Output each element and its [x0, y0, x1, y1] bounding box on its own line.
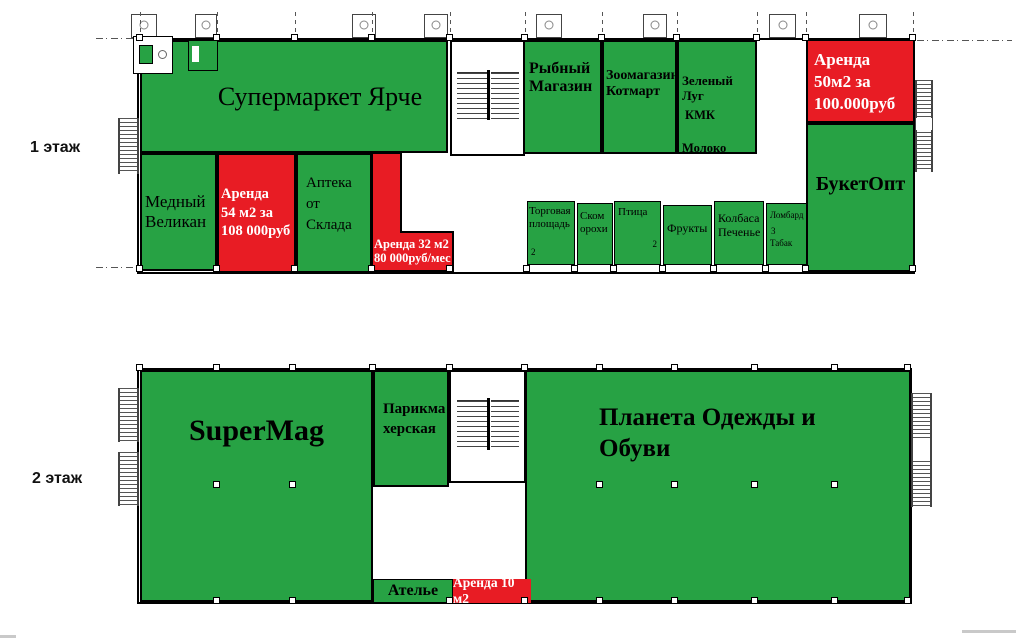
room-label: Супермаркет Ярче — [218, 82, 422, 112]
column-marker — [136, 34, 143, 41]
page-edge-line — [0, 635, 16, 638]
axis-line — [96, 267, 138, 268]
room-supermag: SuperMag — [140, 370, 373, 602]
column-marker — [446, 265, 453, 272]
room-label: БукетОпт — [816, 173, 905, 196]
room-label: Зоомагазин Котмарт — [606, 68, 679, 152]
column-marker — [289, 481, 296, 488]
column-marker — [762, 265, 769, 272]
column-marker — [753, 34, 760, 41]
column-marker — [289, 597, 296, 604]
rent-ad-label: Аренда 32 м2 80 000руб/мес — [374, 237, 458, 266]
staircase-landing — [913, 438, 930, 458]
column-marker — [521, 34, 528, 41]
room-label: Ломбард — [770, 210, 803, 220]
entrance-porch — [859, 14, 887, 38]
column-marker — [136, 265, 143, 272]
stall-kolbasa-pechenye: Колбаса Печенье — [714, 201, 764, 265]
unit-rent-10m2: Аренда 10 м2 — [453, 579, 531, 603]
column-marker — [446, 364, 453, 371]
room-apteka-ot-sklada: Аптека от Склада — [296, 153, 372, 273]
room-label: Ателье — [388, 582, 438, 600]
room-zeleny-lug: Зеленый Луг КМК Молоко — [677, 40, 757, 154]
entrance-porch — [424, 14, 448, 38]
entrance-porch — [643, 14, 667, 38]
room-buketopt: БукетОпт — [806, 123, 915, 272]
staircase-landing — [916, 118, 932, 130]
room-label: Молоко — [682, 141, 726, 155]
stair-divider — [487, 70, 490, 120]
column-marker — [904, 364, 911, 371]
external-staircase-left-floor2 — [118, 452, 139, 506]
column-marker — [831, 364, 838, 371]
column-marker — [136, 364, 143, 371]
column-marker — [802, 265, 809, 272]
axis-line — [917, 40, 1012, 41]
stall-number: 2 — [653, 240, 658, 249]
column-marker — [831, 481, 838, 488]
room-label: Медный Великан — [145, 192, 206, 231]
room-medny-velikan: Медный Великан — [140, 153, 217, 271]
column-marker — [802, 34, 809, 41]
room-label: Колбаса Печенье — [718, 212, 760, 264]
room-label: SuperMag — [189, 414, 324, 600]
stall-ptitsa: Птица 2 — [614, 201, 661, 265]
column-marker — [368, 265, 375, 272]
column-marker — [751, 481, 758, 488]
column-marker — [571, 265, 578, 272]
room-label: Парикма херская — [383, 400, 445, 485]
room-label: Птица — [618, 206, 647, 264]
room-label: Зеленый Луг — [682, 74, 755, 104]
stair-flight — [491, 400, 519, 448]
external-staircase-left-floor1 — [118, 118, 139, 174]
external-staircase-left-floor2 — [118, 388, 139, 442]
column-marker — [291, 34, 298, 41]
unit-rent-54m2: Аренда 54 м2 за 108 000руб — [217, 153, 296, 273]
column-marker — [213, 364, 220, 371]
room-atelye: Ателье — [373, 579, 453, 603]
sink-icon — [158, 50, 167, 59]
axis-line — [96, 38, 138, 39]
restroom-cabin — [139, 45, 153, 64]
column-marker — [213, 481, 220, 488]
stall-skom-orohi: Ском орохи — [577, 203, 613, 265]
stall-number: 2 — [531, 248, 536, 257]
stair-flight — [457, 72, 487, 119]
floorplan-canvas: 1 этаж Супермаркет Ярче Рыбный Магазин З… — [0, 0, 1016, 640]
column-marker — [909, 265, 916, 272]
column-marker — [598, 34, 605, 41]
entrance-porch — [769, 14, 796, 38]
column-marker — [523, 265, 530, 272]
room-label: КМК — [685, 108, 715, 122]
stall-lombard-tabak: Ломбард 3 Табак — [766, 203, 807, 265]
room-supermarket-yarche: Супермаркет Ярче — [140, 40, 448, 153]
stall-torgovaya-ploshchad: Торговая площадь 2 — [527, 201, 575, 265]
room-planeta-odezhdy: Планета Одежды и Обуви — [525, 370, 911, 602]
room-label: Фрукты — [667, 222, 707, 264]
column-marker — [751, 364, 758, 371]
column-marker — [368, 34, 375, 41]
rent-ad-label: Аренда 50м2 за 100.000руб — [814, 49, 895, 121]
column-marker — [710, 265, 717, 272]
column-marker — [446, 597, 453, 604]
entrance-porch — [131, 14, 157, 38]
room-label: Планета Одежды и Обуви — [599, 402, 816, 600]
rent-ad-label: Аренда 10 м2 — [453, 575, 531, 606]
room-label: Рыбный Магазин — [529, 60, 592, 152]
column-marker — [673, 34, 680, 41]
page-edge-line — [962, 630, 1016, 633]
unit-rent-50m2: Аренда 50м2 за 100.000руб — [806, 39, 915, 123]
room-label: Аптека от Склада — [306, 173, 352, 271]
column-marker — [659, 265, 666, 272]
stall-frukty: Фрукты — [663, 205, 712, 265]
column-marker — [289, 364, 296, 371]
column-marker — [446, 34, 453, 41]
column-marker — [213, 597, 220, 604]
restroom-door-gap — [192, 46, 199, 62]
room-parikmakherskaya: Парикма херская — [373, 370, 449, 487]
column-marker — [904, 597, 911, 604]
floor2-label: 2 этаж — [32, 470, 82, 488]
column-marker — [751, 597, 758, 604]
column-marker — [291, 265, 298, 272]
column-marker — [610, 265, 617, 272]
stall-number: 3 — [771, 227, 776, 236]
stair-divider — [487, 398, 490, 450]
column-marker — [671, 597, 678, 604]
column-marker — [671, 481, 678, 488]
room-label: Табак — [770, 238, 792, 248]
room-label: Ском орохи — [580, 210, 608, 264]
column-marker — [521, 364, 528, 371]
column-marker — [671, 364, 678, 371]
stair-flight — [457, 400, 487, 448]
column-marker — [213, 265, 220, 272]
column-marker — [369, 364, 376, 371]
column-marker — [831, 597, 838, 604]
column-marker — [909, 34, 916, 41]
column-marker — [521, 597, 528, 604]
rent-ad-label: Аренда 54 м2 за 108 000руб — [221, 185, 290, 242]
column-marker — [596, 597, 603, 604]
entrance-porch — [536, 14, 562, 38]
room-rybny-magazin: Рыбный Магазин — [523, 40, 602, 154]
column-marker — [596, 364, 603, 371]
floor1-label: 1 этаж — [30, 139, 80, 157]
column-marker — [213, 34, 220, 41]
room-zoomagazin-kotmart: Зоомагазин Котмарт — [602, 40, 677, 154]
stair-flight — [491, 72, 519, 119]
column-marker — [596, 481, 603, 488]
